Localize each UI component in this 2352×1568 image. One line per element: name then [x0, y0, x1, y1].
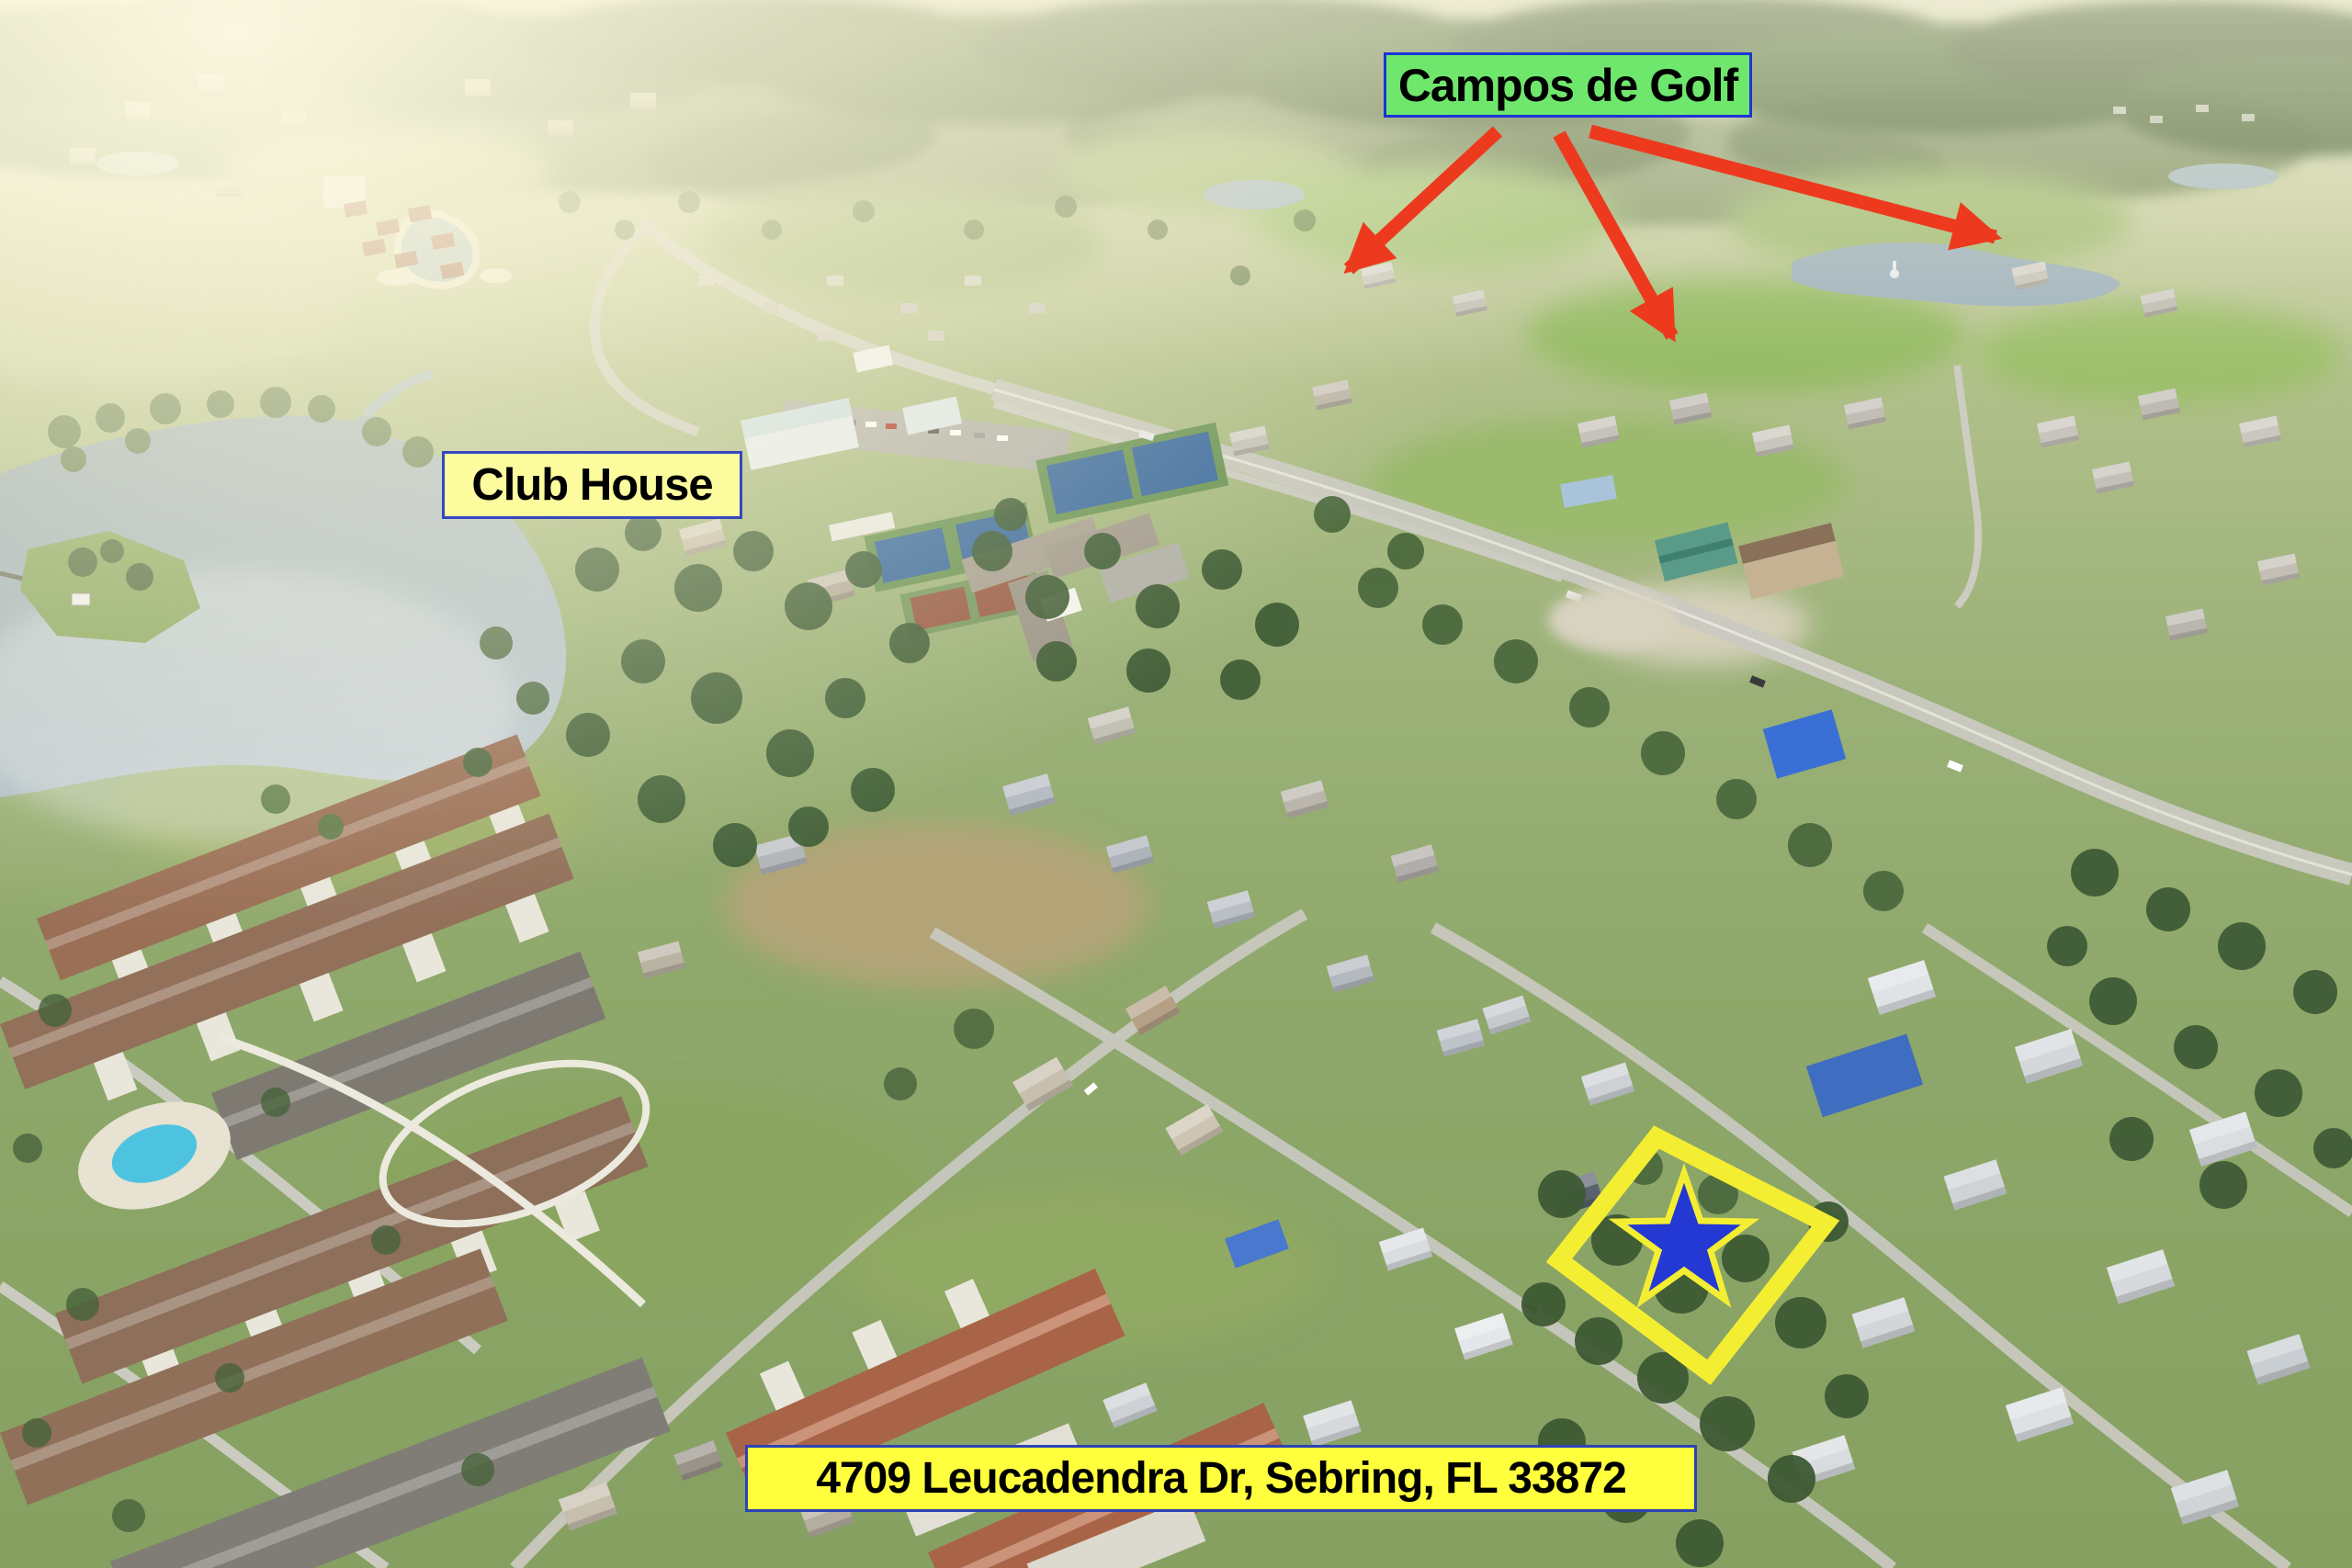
golf-courses-label: Campos de Golf: [1384, 52, 1752, 118]
club-house-label-text: Club House: [471, 459, 712, 511]
property-address-label: 4709 Leucadendra Dr, Sebring, FL 33872: [745, 1445, 1697, 1512]
club-house-label: Club House: [442, 451, 742, 519]
aerial-photo-background: [0, 0, 2352, 1568]
golf-courses-label-text: Campos de Golf: [1398, 59, 1737, 112]
property-address-label-text: 4709 Leucadendra Dr, Sebring, FL 33872: [816, 1453, 1626, 1504]
aerial-photo: Campos de Golf Club House 4709 Leucadend…: [0, 0, 2352, 1568]
sun-glare: [0, 0, 2352, 1568]
